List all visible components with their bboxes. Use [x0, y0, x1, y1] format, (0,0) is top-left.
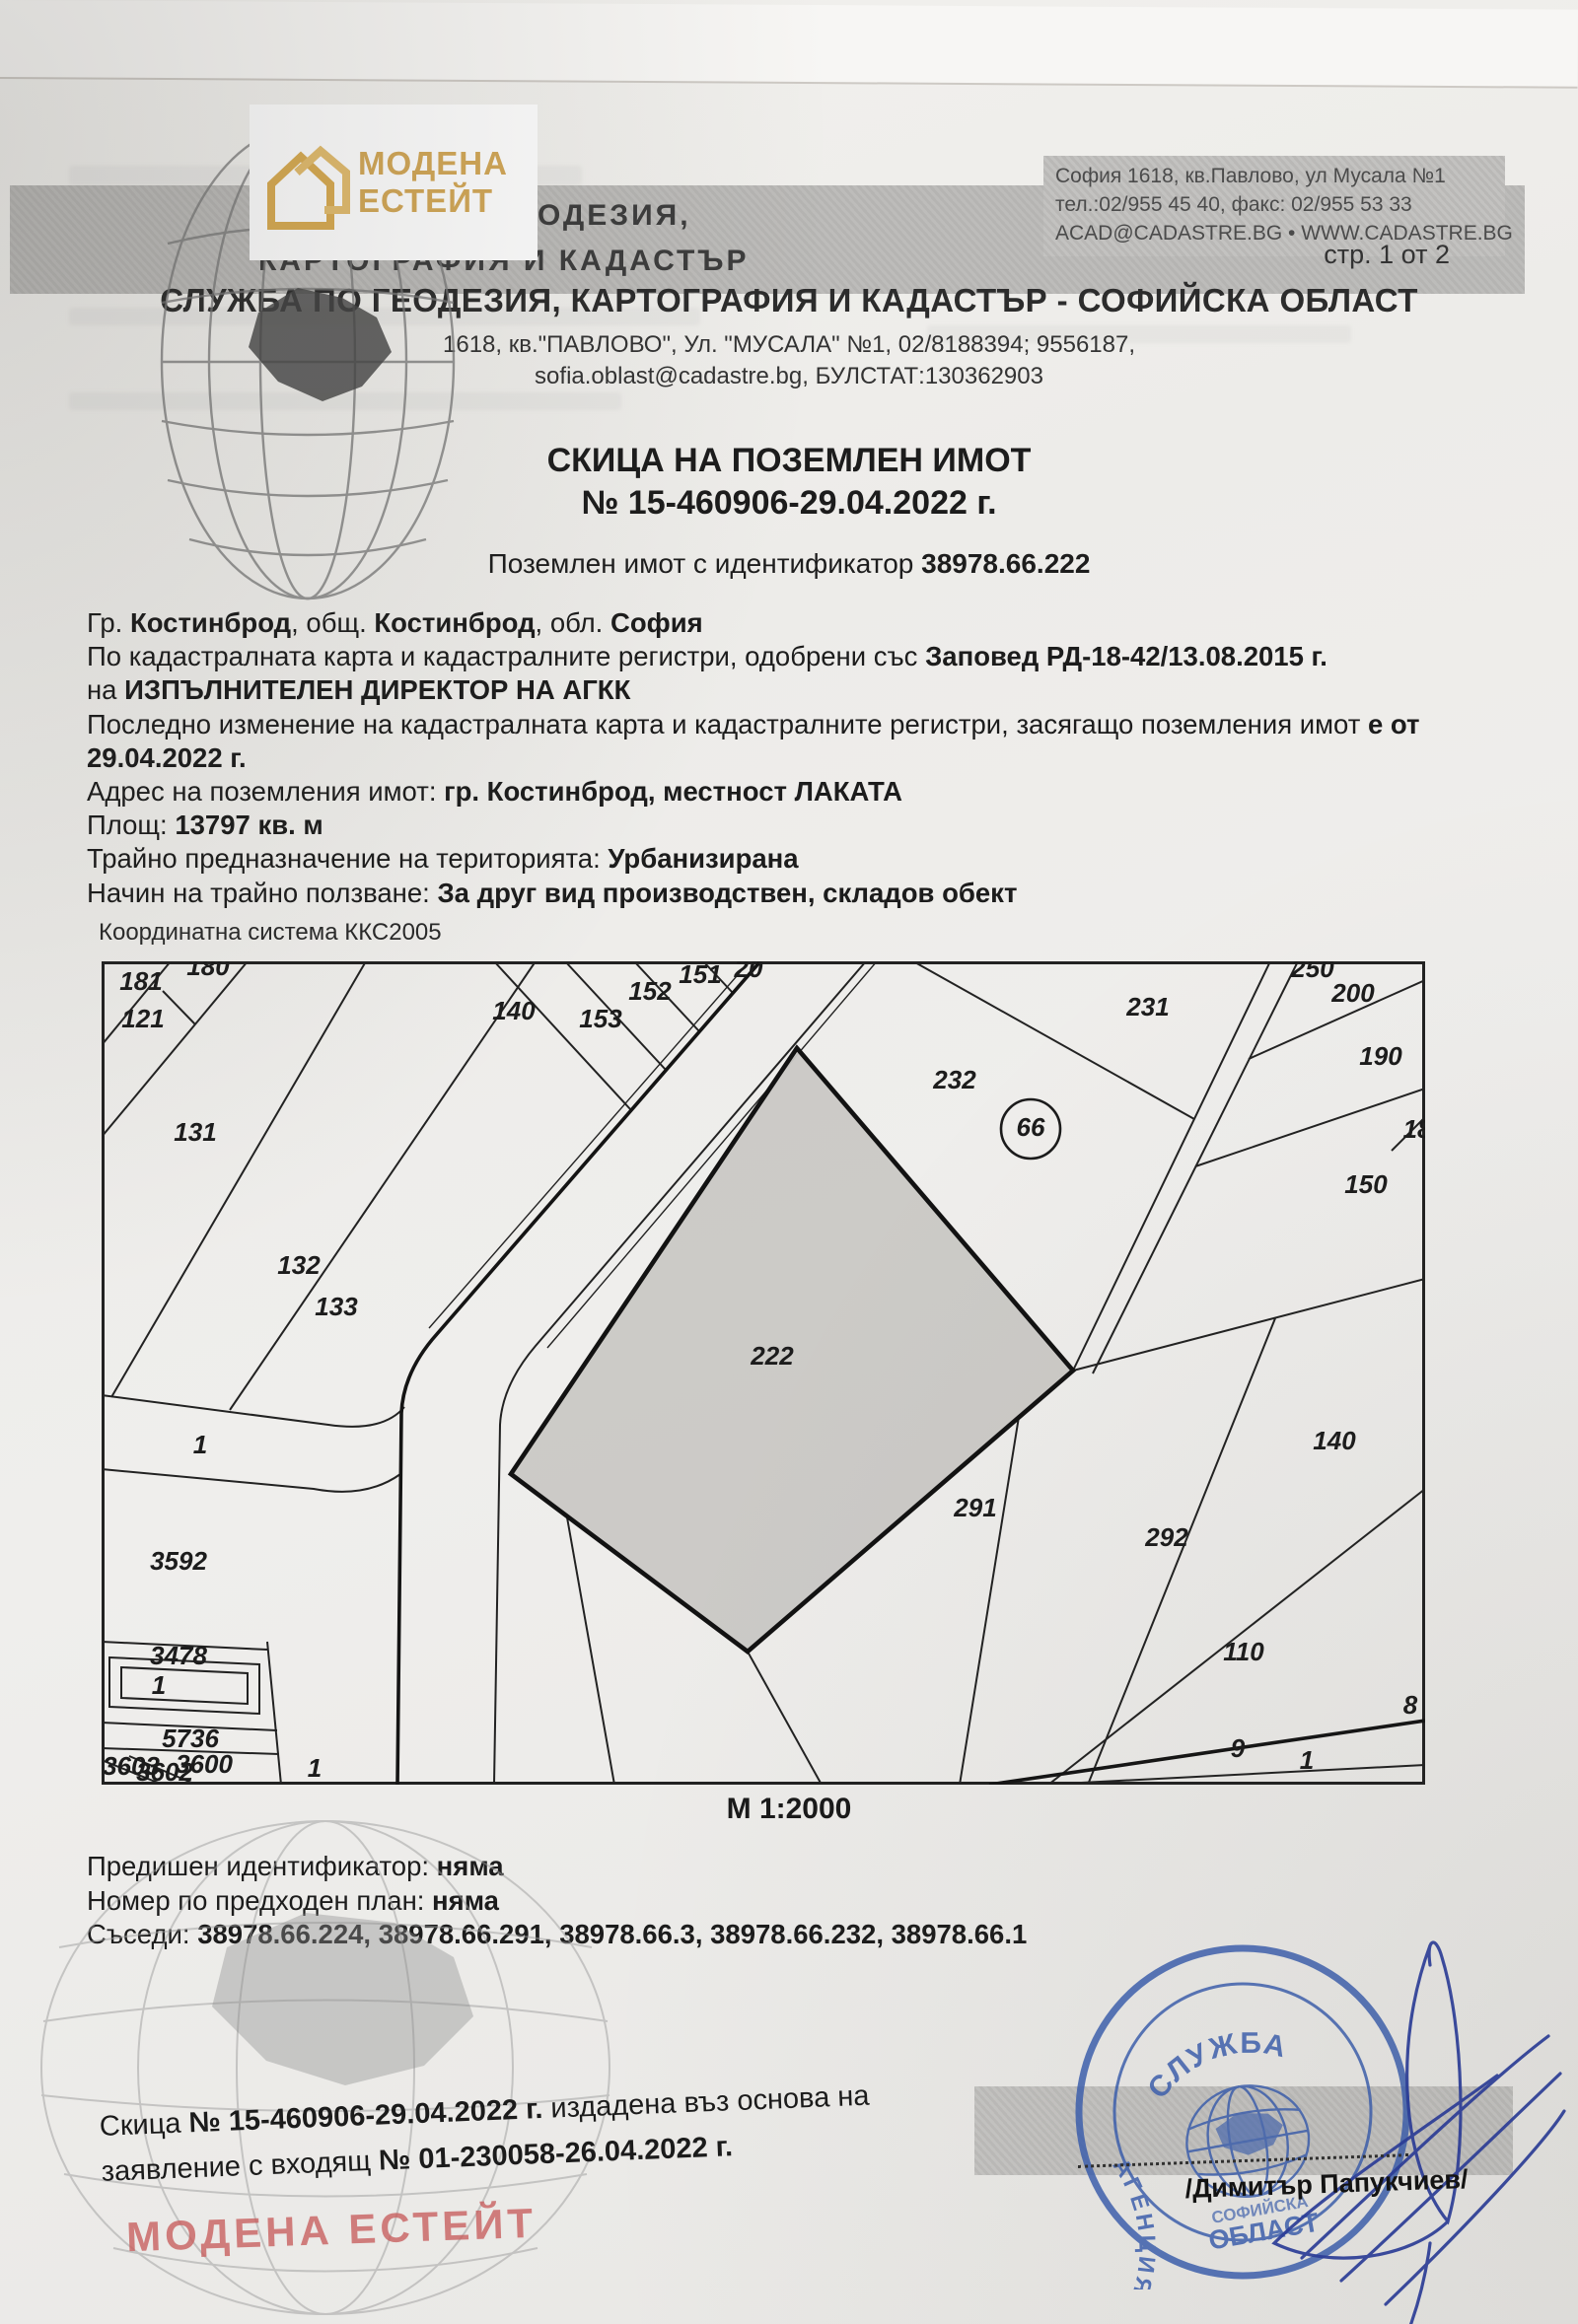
svg-text:151: 151	[679, 961, 721, 989]
coordinate-system-label: Координатна система ККС2005	[99, 919, 442, 947]
svg-text:150: 150	[1344, 1169, 1388, 1199]
page-indicator: стр. 1 от 2	[1272, 240, 1450, 270]
scanned-cadastral-document: АГЕНЦИЯ ПО ГЕОДЕЗИЯ, КАРТОГРАФИЯ И КАДАС…	[0, 0, 1578, 2324]
detail-line-location: Гр. Костинброд, общ. Костинброд, обл. Со…	[87, 606, 1537, 640]
modena-logo-text: МОДЕНА ЕСТЕЙТ	[358, 145, 508, 220]
brand-line2: ЕСТЕЙТ	[358, 182, 508, 220]
contact-phone: тел.:02/955 45 40, факс: 02/955 53 33	[1055, 190, 1493, 219]
svg-text:18: 18	[1403, 1114, 1425, 1144]
detail-line-director: на ИЗПЪЛНИТЕЛЕН ДИРЕКТОР НА АГКК	[87, 673, 1537, 707]
bulgaria-map-silhouette	[249, 288, 392, 401]
svg-text:131: 131	[174, 1117, 216, 1147]
svg-text:200: 200	[1330, 978, 1375, 1008]
svg-text:180: 180	[186, 961, 230, 981]
svg-text:250: 250	[1290, 961, 1334, 983]
svg-text:140: 140	[492, 996, 536, 1025]
south-road-line	[989, 1721, 1425, 1785]
svg-text:1: 1	[152, 1670, 166, 1700]
svg-text:3478: 3478	[150, 1641, 207, 1670]
detail-line-change-date: 29.04.2022 г.	[87, 741, 1537, 775]
svg-text:190: 190	[1359, 1041, 1402, 1071]
detail-line-address: Адрес на поземления имот: гр. Костинброд…	[87, 775, 1537, 809]
svg-text:8: 8	[1403, 1690, 1418, 1720]
svg-text:66: 66	[1017, 1112, 1045, 1142]
svg-text:9: 9	[1231, 1733, 1246, 1763]
svg-text:110: 110	[1223, 1637, 1264, 1666]
brand-line1: МОДЕНА	[358, 145, 508, 182]
detail-line-territory-purpose: Трайно предназначение на територията: Ур…	[87, 842, 1537, 876]
svg-text:3592: 3592	[150, 1546, 207, 1576]
bulgaria-map-silhouette	[212, 1913, 473, 2085]
svg-text:292: 292	[1144, 1522, 1188, 1552]
svg-text:181: 181	[119, 966, 162, 996]
cadastral-map: 1811801211311321331401531521512023123266…	[102, 961, 1425, 1785]
house-icon	[250, 123, 358, 242]
svg-text:231: 231	[1125, 992, 1169, 1021]
svg-text:1: 1	[308, 1753, 322, 1783]
detail-line-last-change: Последно изменение на кадастралната карт…	[87, 708, 1537, 741]
svg-text:121: 121	[121, 1004, 164, 1033]
pen-signature	[1134, 1918, 1568, 2324]
svg-text:222: 222	[750, 1341, 794, 1371]
detail-line-order: По кадастралната карта и кадастралните р…	[87, 640, 1537, 673]
svg-text:20: 20	[734, 961, 763, 983]
svg-text:232: 232	[932, 1065, 976, 1094]
detail-line-land-use: Начин на трайно ползване: За друг вид пр…	[87, 877, 1537, 910]
svg-text:153: 153	[579, 1004, 622, 1033]
svg-text:132: 132	[277, 1250, 321, 1280]
contact-address: София 1618, кв.Павлово, ул Мусала №1	[1055, 162, 1493, 190]
svg-text:1: 1	[193, 1430, 207, 1459]
detail-line-area: Площ: 13797 кв. м	[87, 809, 1537, 842]
svg-text:1: 1	[1300, 1745, 1314, 1775]
svg-text:3600: 3600	[176, 1749, 233, 1779]
property-details: Гр. Костинброд, общ. Костинброд, обл. Со…	[87, 606, 1537, 910]
svg-text:152: 152	[628, 976, 672, 1006]
svg-text:140: 140	[1313, 1426, 1356, 1455]
modena-estate-logo: МОДЕНА ЕСТЕЙТ	[250, 105, 538, 260]
paper-edge	[0, 0, 1578, 89]
svg-text:133: 133	[315, 1292, 358, 1321]
svg-text:291: 291	[953, 1493, 996, 1522]
